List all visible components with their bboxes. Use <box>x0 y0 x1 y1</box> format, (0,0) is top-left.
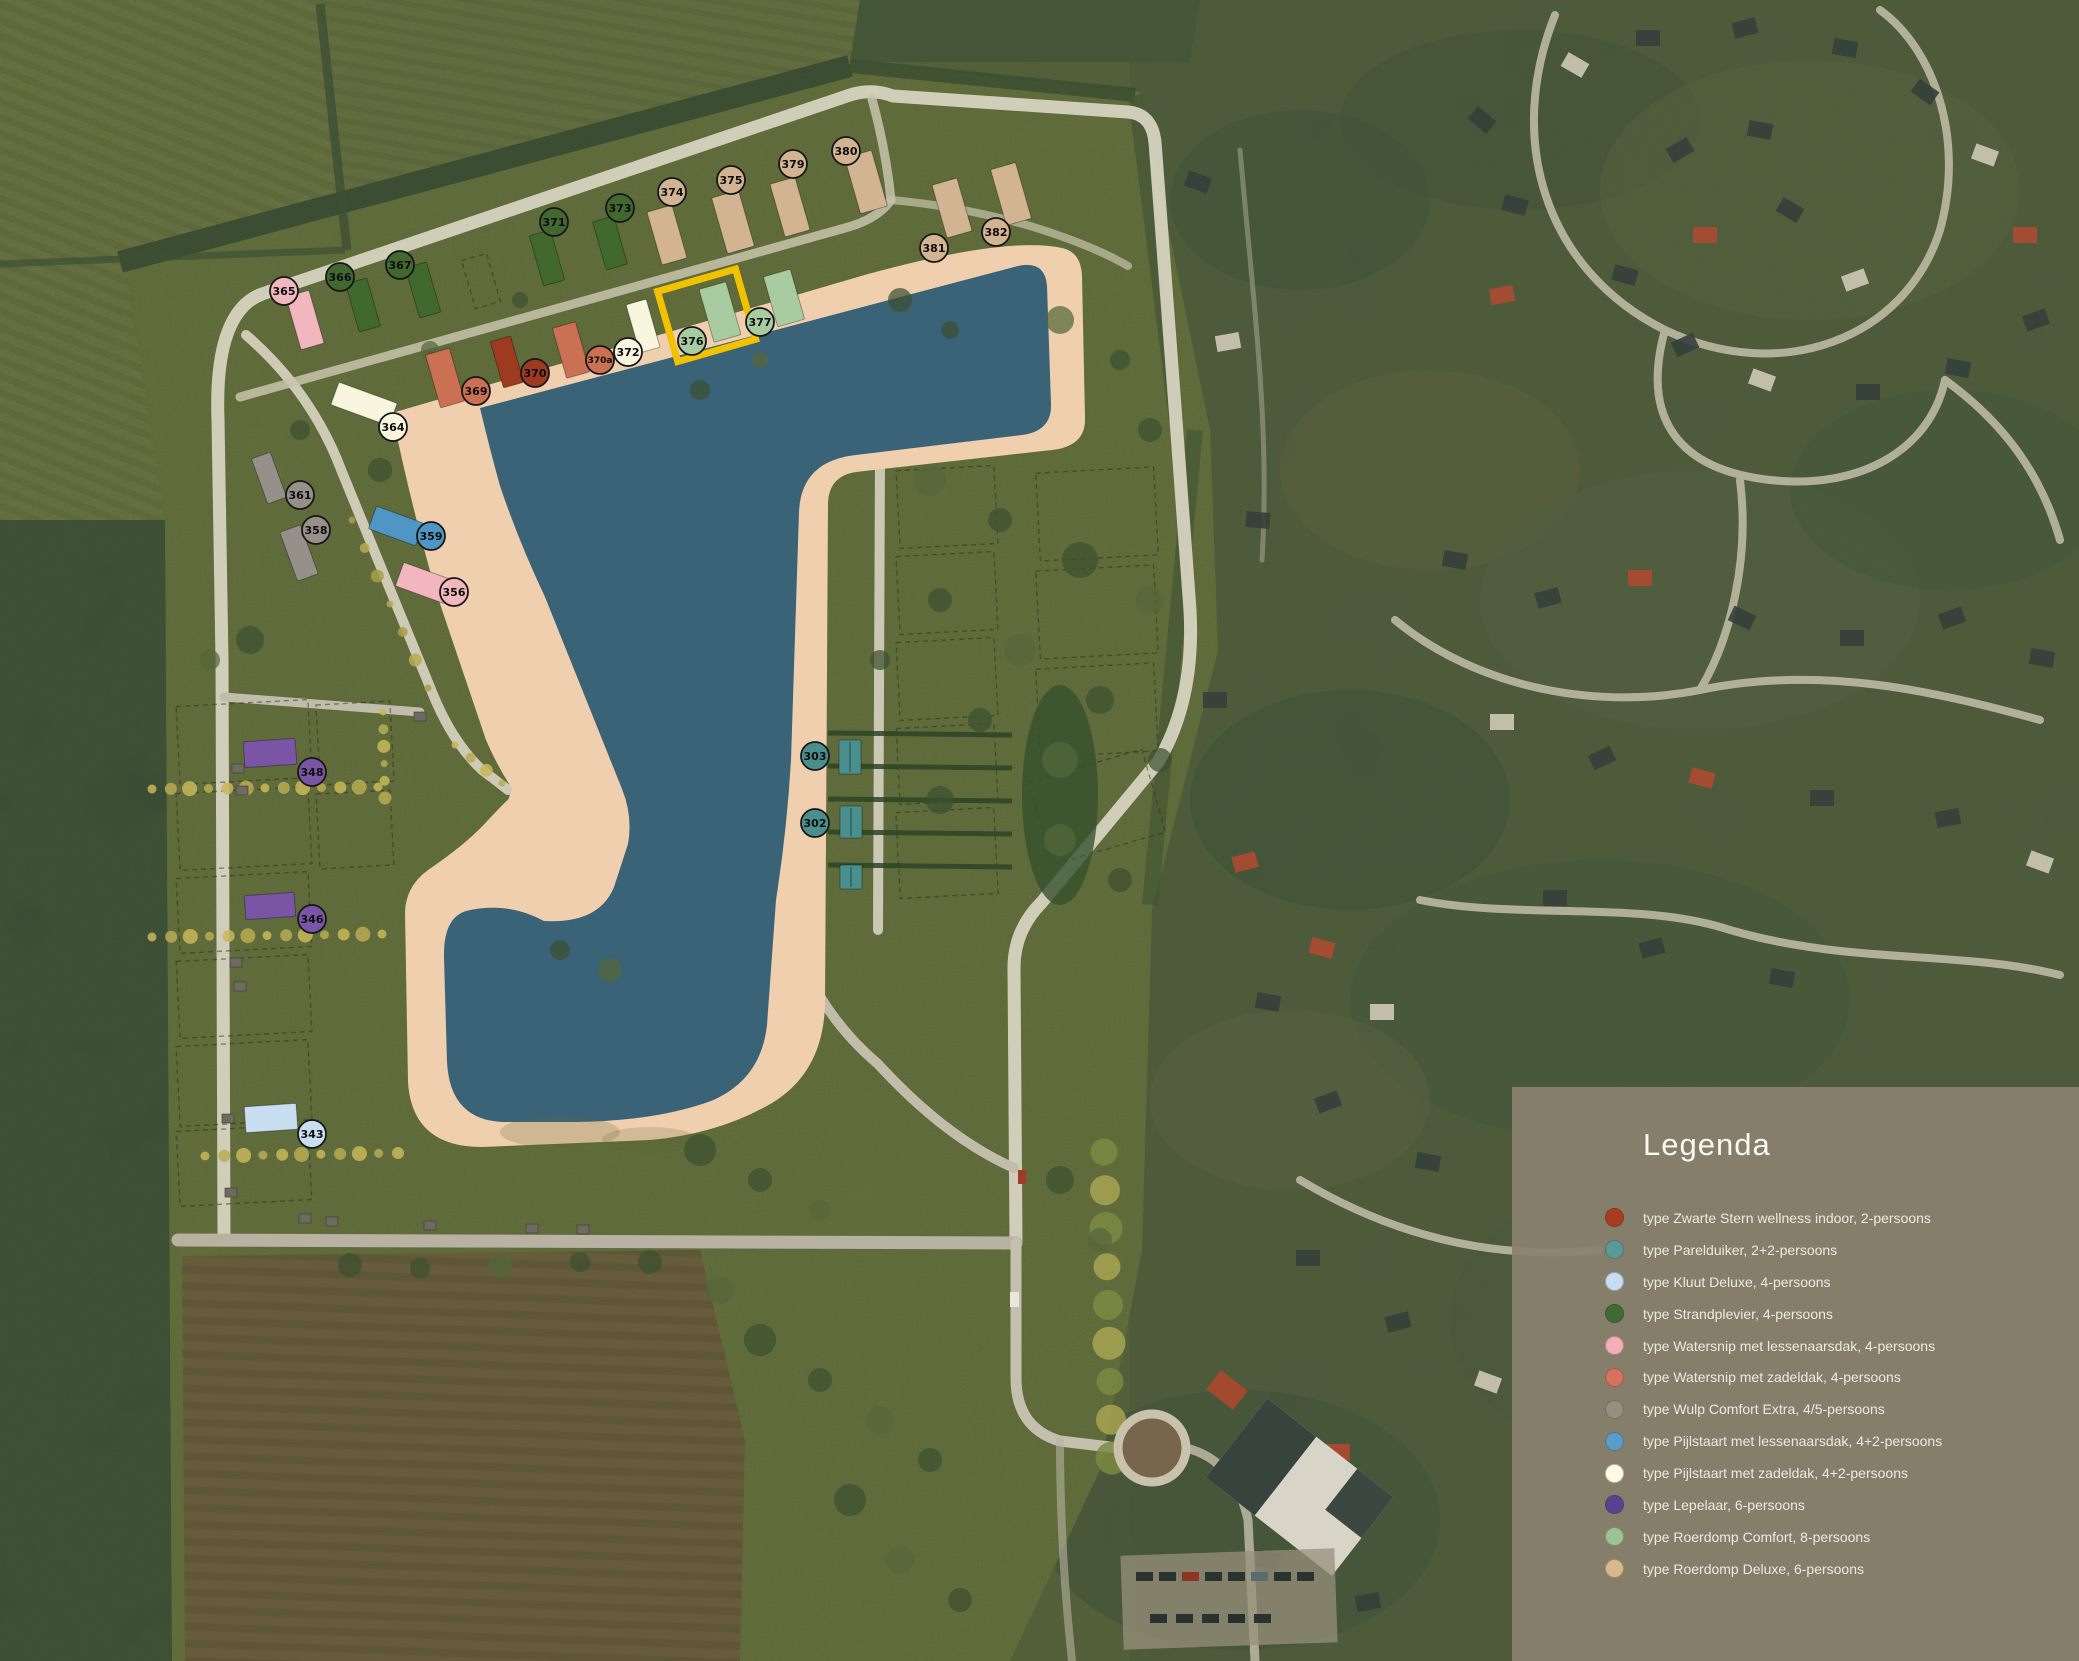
bush <box>1093 1290 1123 1320</box>
legend-color-dot <box>1605 1304 1624 1323</box>
bush <box>1094 1253 1121 1280</box>
bush <box>371 570 384 583</box>
legend-entries: type Zwarte Stern wellness indoor, 2-per… <box>1512 1202 2079 1585</box>
tree <box>744 1324 776 1356</box>
lot-marker-303[interactable]: 303 <box>801 742 829 770</box>
lot-marker-358[interactable]: 358 <box>302 516 330 544</box>
tree <box>1044 824 1076 856</box>
legend-color-dot <box>1605 1208 1624 1227</box>
car <box>1182 1572 1199 1581</box>
legend-entry: type Strandplevier, 4-persoons <box>1512 1298 2079 1330</box>
tree <box>752 352 768 368</box>
legend-entry-label: type Strandplevier, 4-persoons <box>1643 1306 1833 1322</box>
tree <box>706 1276 734 1304</box>
bush <box>379 792 392 805</box>
tree <box>368 458 392 482</box>
tree <box>888 288 912 312</box>
bush <box>183 929 198 944</box>
bush <box>381 760 388 767</box>
bush <box>223 930 235 942</box>
lot-number: 356 <box>443 586 466 599</box>
legend-entry: type Roerdomp Comfort, 8-persoons <box>1512 1521 2079 1553</box>
tree <box>1108 868 1132 892</box>
bush <box>352 1146 367 1161</box>
lot-number: 370a <box>588 356 613 366</box>
legend-color-dot <box>1605 1368 1624 1387</box>
garden-shed <box>230 958 242 967</box>
legend-entry-label: type Pijlstaart met zadeldak, 4+2-persoo… <box>1643 1465 1908 1481</box>
bush <box>499 780 506 787</box>
bush <box>294 1147 309 1162</box>
garden-shed <box>526 1224 538 1233</box>
tree <box>684 1134 716 1166</box>
tree <box>1004 634 1036 666</box>
lot-marker-366[interactable]: 366 <box>326 263 354 291</box>
bush <box>165 931 177 943</box>
bush <box>380 709 387 716</box>
lot-marker-370[interactable]: 370 <box>521 359 549 387</box>
lot-number: 361 <box>289 489 312 502</box>
bush <box>261 784 270 793</box>
existing-cottage <box>1490 714 1514 730</box>
bush <box>480 764 493 777</box>
lot-number: 371 <box>543 216 566 229</box>
lot-number: 364 <box>382 421 405 434</box>
tree <box>338 1253 362 1277</box>
lot-house[interactable] <box>244 892 296 919</box>
bush <box>165 783 177 795</box>
lot-number: 367 <box>389 259 412 272</box>
car <box>1205 1572 1222 1581</box>
lot-number: 348 <box>301 766 324 779</box>
legend-entry-label: type Watersnip met zadeldak, 4-persoons <box>1643 1369 1901 1385</box>
tree <box>1046 306 1074 334</box>
tree <box>570 1252 590 1272</box>
bush <box>1093 1327 1126 1360</box>
bush <box>334 1148 346 1160</box>
legend-entry-label: type Lepelaar, 6-persoons <box>1643 1497 1805 1513</box>
legend-color-dot <box>1605 1559 1624 1578</box>
lot-number: 365 <box>273 285 296 298</box>
legend-entry-label: type Zwarte Stern wellness indoor, 2-per… <box>1643 1210 1931 1226</box>
garden-shed <box>225 1188 237 1197</box>
lot-marker-382[interactable]: 382 <box>982 218 1010 246</box>
existing-cottage <box>1543 890 1567 906</box>
lot-number: 302 <box>804 817 827 830</box>
lot-number: 372 <box>617 346 640 359</box>
tree <box>914 464 946 496</box>
existing-cottage <box>1203 692 1227 708</box>
lot-marker-302[interactable]: 302 <box>801 809 829 837</box>
lot-number: 358 <box>305 524 328 537</box>
existing-cottage <box>1296 1250 1320 1266</box>
tree <box>1086 686 1114 714</box>
lot-number: 377 <box>749 316 772 329</box>
legend-entry-label: type Watersnip met lessenaarsdak, 4-pers… <box>1643 1338 1935 1354</box>
legend-panel: Legenda type Zwarte Stern wellness indoo… <box>1512 1087 2079 1661</box>
bush <box>205 932 214 941</box>
car <box>1159 1572 1176 1581</box>
south-road[interactable] <box>178 1240 1016 1243</box>
tree <box>1110 350 1130 370</box>
legend-color-dot <box>1605 1240 1624 1259</box>
car <box>1297 1572 1314 1581</box>
bush <box>355 927 370 942</box>
legend-entry: type Watersnip met lessenaarsdak, 4-pers… <box>1512 1330 2079 1362</box>
tree <box>1042 742 1078 778</box>
tree <box>1046 1166 1074 1194</box>
existing-cottage <box>1636 30 1660 46</box>
bush <box>182 781 197 796</box>
bush <box>236 1148 251 1163</box>
lot-marker-370a[interactable]: 370a <box>586 346 614 374</box>
existing-cottage <box>1810 790 1834 806</box>
car <box>1202 1614 1219 1623</box>
lot-marker-361[interactable]: 361 <box>286 481 314 509</box>
bush <box>258 1151 267 1160</box>
garden-shed <box>222 1114 234 1123</box>
legend-entry: type Parelduiker, 2+2-persoons <box>1512 1234 2079 1266</box>
legend-color-dot <box>1605 1272 1624 1291</box>
garden-shed <box>414 712 426 721</box>
legend-color-dot <box>1605 1464 1624 1483</box>
lot-marker-372[interactable]: 372 <box>614 338 642 366</box>
garden-shed <box>232 764 244 773</box>
lot-number: 374 <box>661 186 684 199</box>
tree <box>598 958 622 982</box>
legend-color-dot <box>1605 1495 1624 1514</box>
lot-marker-359[interactable]: 359 <box>417 522 445 550</box>
tree <box>550 940 570 960</box>
lot-number: 366 <box>329 271 352 284</box>
tree <box>988 508 1012 532</box>
lot-marker-380[interactable]: 380 <box>832 137 860 165</box>
car <box>1254 1614 1271 1623</box>
bush <box>398 627 408 637</box>
car <box>1251 1572 1268 1581</box>
legend-color-dot <box>1605 1527 1624 1546</box>
garden-shed <box>577 1225 589 1234</box>
bush <box>280 929 292 941</box>
parking-lot <box>1120 1548 1337 1649</box>
garden-shed <box>424 1221 436 1230</box>
tree <box>1148 748 1172 772</box>
existing-cottage <box>1856 384 1880 400</box>
legend-entry: type Wulp Comfort Extra, 4/5-persoons <box>1512 1393 2079 1425</box>
bush <box>334 781 346 793</box>
tree <box>918 1448 942 1472</box>
tree <box>488 1254 512 1278</box>
legend-entry-label: type Roerdomp Comfort, 8-persoons <box>1643 1529 1870 1545</box>
lot-marker-375[interactable]: 375 <box>717 166 745 194</box>
tree <box>1062 542 1098 578</box>
tree <box>748 1168 772 1192</box>
lot-marker-346[interactable]: 346 <box>298 905 326 933</box>
bush <box>349 517 356 524</box>
tree <box>886 1546 914 1574</box>
car <box>1010 1292 1019 1307</box>
lot-number: 359 <box>420 530 443 543</box>
lot-number: 382 <box>985 226 1008 239</box>
bush <box>320 930 329 939</box>
bush <box>148 933 157 942</box>
lot-marker-343[interactable]: 343 <box>298 1120 326 1148</box>
roundabout <box>1118 1414 1186 1482</box>
tree <box>928 588 952 612</box>
bush <box>452 742 459 749</box>
bush <box>278 782 290 794</box>
bush <box>387 601 394 608</box>
bush <box>409 654 422 667</box>
tree <box>236 626 264 654</box>
bush <box>221 782 233 794</box>
legend-entry: type Pijlstaart met zadeldak, 4+2-persoo… <box>1512 1457 2079 1489</box>
bush <box>1097 1368 1124 1395</box>
bush <box>352 780 367 795</box>
existing-cottage <box>1840 630 1864 646</box>
garden-shed <box>299 1214 311 1223</box>
bush <box>360 543 370 553</box>
tree <box>638 1250 662 1274</box>
legend-color-dot <box>1605 1432 1624 1451</box>
tree <box>834 1484 866 1516</box>
lot-number: 369 <box>465 385 488 398</box>
bush <box>374 1149 383 1158</box>
legend-title: Legenda <box>1643 1127 1771 1163</box>
existing-cottage <box>1370 1004 1394 1020</box>
lot-marker-369[interactable]: 369 <box>462 377 490 405</box>
legend-entry: type Lepelaar, 6-persoons <box>1512 1489 2079 1521</box>
car <box>1228 1572 1245 1581</box>
tree <box>200 650 220 670</box>
bush <box>263 931 272 940</box>
legend-entry-label: type Pijlstaart met lessenaarsdak, 4+2-p… <box>1643 1433 1942 1449</box>
legend-entry-label: type Kluut Deluxe, 4-persoons <box>1643 1274 1831 1290</box>
tree <box>926 786 954 814</box>
lot-number: 346 <box>301 913 324 926</box>
tree-band <box>1022 685 1098 905</box>
tree <box>866 1406 894 1434</box>
tree <box>870 650 890 670</box>
bush <box>218 1150 230 1162</box>
bush <box>377 740 390 753</box>
bush <box>378 724 388 734</box>
legend-entry: type Roerdomp Deluxe, 6-persoons <box>1512 1553 2079 1585</box>
bush <box>1090 1175 1120 1205</box>
garden-shed <box>236 786 248 795</box>
car <box>1018 1170 1026 1184</box>
car <box>1136 1572 1153 1581</box>
bush <box>380 776 390 786</box>
garden-shed <box>326 1217 338 1226</box>
lot-number: 381 <box>923 242 946 255</box>
bush <box>201 1152 210 1161</box>
tree <box>808 1368 832 1392</box>
tree <box>810 1200 830 1220</box>
existing-cottage <box>2013 227 2037 243</box>
lot-number: 379 <box>782 158 805 171</box>
lot-number: 370 <box>524 367 547 380</box>
tree <box>512 292 528 308</box>
lot-house[interactable] <box>243 738 297 768</box>
lot-house[interactable] <box>244 1103 298 1133</box>
lot-marker-367[interactable]: 367 <box>386 251 414 279</box>
car <box>1176 1614 1193 1623</box>
existing-cottage <box>1693 227 1717 243</box>
lot-marker-348[interactable]: 348 <box>298 758 326 786</box>
lot-number: 380 <box>835 145 858 158</box>
garden-shed <box>234 982 246 991</box>
lot-marker-381[interactable]: 381 <box>920 234 948 262</box>
bush <box>204 784 213 793</box>
car <box>1274 1572 1291 1581</box>
tree <box>1136 586 1164 614</box>
legend-color-dot <box>1605 1400 1624 1419</box>
bush <box>276 1149 288 1161</box>
tree <box>410 1258 430 1278</box>
bush <box>392 1147 404 1159</box>
legend-entry-label: type Roerdomp Deluxe, 6-persoons <box>1643 1561 1864 1577</box>
tree <box>1088 1228 1112 1252</box>
bush <box>425 685 432 692</box>
legend-entry-label: type Wulp Comfort Extra, 4/5-persoons <box>1643 1401 1885 1417</box>
bush <box>316 1150 325 1159</box>
lot-marker-374[interactable]: 374 <box>658 178 686 206</box>
tree <box>690 380 710 400</box>
legend-entry-label: type Parelduiker, 2+2-persoons <box>1643 1242 1837 1258</box>
legend-entry: type Watersnip met zadeldak, 4-persoons <box>1512 1361 2079 1393</box>
car <box>1150 1614 1167 1623</box>
lot-number: 303 <box>804 750 827 763</box>
lot-marker-371[interactable]: 371 <box>540 208 568 236</box>
lot-number: 373 <box>609 202 632 215</box>
tree <box>290 420 310 440</box>
bush <box>1091 1139 1118 1166</box>
lot-number: 375 <box>720 174 743 187</box>
existing-cottage <box>1245 511 1270 529</box>
lot-marker-376[interactable]: 376 <box>678 327 706 355</box>
lot-marker-379[interactable]: 379 <box>779 150 807 178</box>
tree <box>1138 418 1162 442</box>
bush <box>338 929 350 941</box>
lot-marker-373[interactable]: 373 <box>606 194 634 222</box>
legend-entry: type Kluut Deluxe, 4-persoons <box>1512 1266 2079 1298</box>
tree <box>941 321 959 339</box>
legend-entry: type Pijlstaart met lessenaarsdak, 4+2-p… <box>1512 1425 2079 1457</box>
bush <box>466 753 476 763</box>
lot-number: 376 <box>681 335 704 348</box>
lot-marker-377[interactable]: 377 <box>746 308 774 336</box>
legend-color-dot <box>1605 1336 1624 1355</box>
holiday-park-sale-map: 3653663673713733743753793803813823643693… <box>0 0 2079 1661</box>
bush <box>378 930 387 939</box>
bush <box>240 928 255 943</box>
lot-number: 343 <box>301 1128 324 1141</box>
existing-cottage <box>1628 570 1652 586</box>
lot-marker-365[interactable]: 365 <box>270 277 298 305</box>
legend-entry: type Zwarte Stern wellness indoor, 2-per… <box>1512 1202 2079 1234</box>
bush <box>148 785 157 794</box>
lot-marker-364[interactable]: 364 <box>379 413 407 441</box>
tree <box>948 1588 972 1612</box>
tree <box>968 708 992 732</box>
lot-marker-356[interactable]: 356 <box>440 578 468 606</box>
car <box>1228 1614 1245 1623</box>
